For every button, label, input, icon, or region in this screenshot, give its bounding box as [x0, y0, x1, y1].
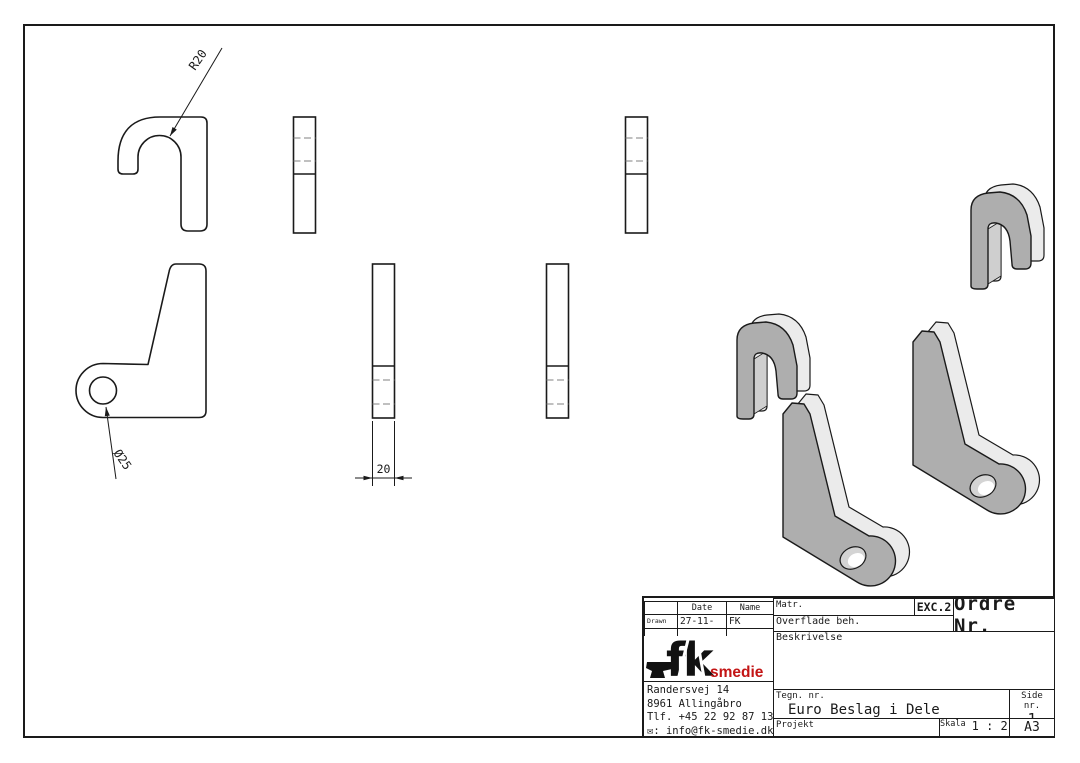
front-view-hook: [118, 117, 207, 231]
ordre-nr-cell: Ordre Nr.: [953, 598, 1055, 632]
address-line-2: 8961 Allingåbro: [647, 698, 771, 712]
iso-view-bracket-2: [783, 394, 909, 586]
rev-drawn-label-cell: Drawn: [644, 614, 678, 629]
phone-line: Tlf. +45 22 92 87 13: [647, 711, 771, 725]
email-text: : info@fk-smedie.dk: [653, 725, 773, 737]
rev-date-header: Date: [677, 601, 727, 615]
dim-arrowhead: [364, 476, 373, 480]
projekt-cell: Projekt: [773, 718, 940, 737]
leader-arrowhead: [105, 407, 110, 416]
company-address: Randersvej 14 8961 Allingåbro Tlf. +45 2…: [644, 681, 774, 736]
thickness-dimension: 20: [355, 421, 412, 486]
iso-view-bracket-1: [913, 322, 1039, 514]
title-block: Date Name Drawn 27-11-2025 FK fk smedie …: [642, 596, 1055, 737]
exc-code-cell: EXC.2: [914, 598, 954, 616]
drawing-sheet: R20 Ø25: [0, 0, 1080, 763]
radius-leader: R20: [170, 47, 222, 136]
matr-label: Matr.: [774, 599, 914, 611]
leader-arrowhead: [170, 127, 177, 136]
dim-arrowhead: [395, 476, 404, 480]
drawing-title: Euro Beslag i Dele: [774, 702, 1009, 718]
side-view-hook-left: [294, 117, 316, 233]
side-view-hook-right: [626, 117, 648, 233]
side-label: Side nr.: [1010, 690, 1054, 712]
rev-corner-cell: [644, 601, 678, 615]
beskrivelse-label: Beskrivelse: [774, 632, 1054, 644]
address-line-1: Randersvej 14: [647, 684, 771, 698]
overflade-cell: Overflade beh.: [773, 615, 954, 632]
side-view-bracket-right: [547, 264, 569, 418]
tegn-nr-cell: Tegn. nr. Euro Beslag i Dele: [773, 689, 1010, 719]
email-line: ✉: info@fk-smedie.dk: [647, 725, 771, 737]
logo-smedie-text: smedie: [710, 664, 764, 681]
tegn-label: Tegn. nr.: [774, 690, 1009, 702]
iso-view-hook-1: [971, 184, 1044, 289]
company-logo-cell: fk smedie: [644, 636, 774, 682]
projekt-label: Projekt: [774, 719, 939, 731]
beskrivelse-cell: Beskrivelse: [773, 631, 1055, 690]
skala-value: 1 : 2,5: [972, 719, 1010, 733]
radius-annotation: R20: [186, 47, 210, 73]
paper-size-cell: A3: [1009, 718, 1055, 737]
skala-cell: Skala 1 : 2,5: [939, 718, 1010, 737]
side-nr-cell: Side nr. 1: [1009, 689, 1055, 719]
matr-cell: Matr.: [773, 598, 915, 616]
drawn-name: FK: [726, 614, 774, 629]
drawn-label: Drawn: [645, 615, 677, 627]
thickness-dimension-text: 20: [377, 462, 391, 476]
side-view-bracket-left: [373, 264, 395, 418]
front-view-bracket: [76, 264, 206, 418]
drawn-date: 27-11-2025: [677, 614, 727, 629]
bracket-hole: [90, 377, 117, 404]
logo-fk-text: fk: [666, 636, 715, 681]
rev-name-header: Name: [726, 601, 774, 615]
skala-label: Skala: [940, 719, 966, 729]
overflade-label: Overflade beh.: [774, 616, 953, 628]
fk-smedie-logo: fk smedie: [644, 636, 772, 681]
